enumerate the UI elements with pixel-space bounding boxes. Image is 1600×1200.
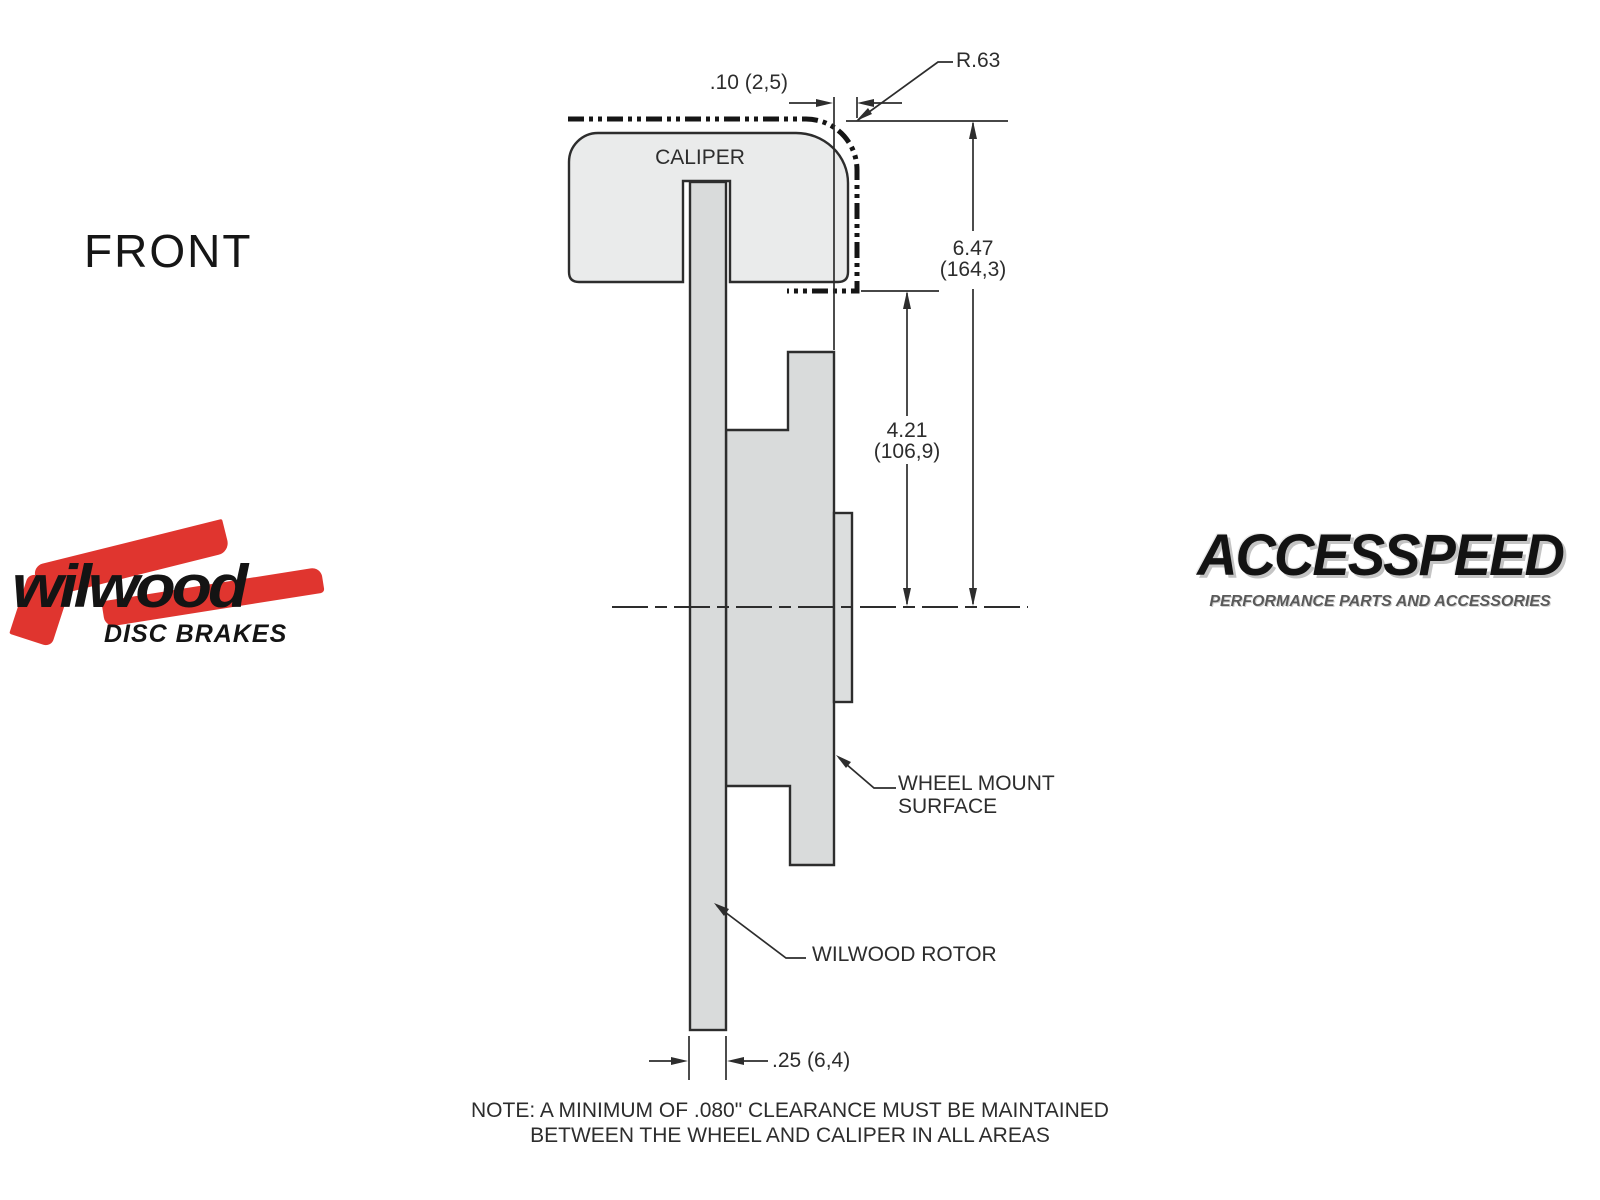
wheel-mount-leader-line xyxy=(836,755,896,788)
dim-rotor-thickness-label: .25 (6,4) xyxy=(772,1050,850,1072)
wheel-mount-surface-callout: WHEEL MOUNT SURFACE xyxy=(898,772,1055,818)
arrowhead-left xyxy=(857,99,874,107)
arrowhead-up xyxy=(969,121,977,139)
accesspeed-logo: ACCESSPEED PERFORMANCE PARTS AND ACCESSO… xyxy=(1192,522,1568,640)
arrowhead-right xyxy=(671,1057,688,1065)
dim-overall-height xyxy=(969,121,977,606)
wheel-mount-surface-line2: SURFACE xyxy=(898,795,1055,818)
dim-mount-height-label: 4.21 (106,9) xyxy=(854,420,960,462)
dim-overall-height-label: 6.47 (164,3) xyxy=(920,238,1026,280)
leader-line xyxy=(717,906,806,958)
leader-line xyxy=(858,62,953,120)
wilwood-disc-brakes-text: DISC BRAKES xyxy=(104,620,287,649)
arrowhead-down xyxy=(903,588,911,606)
dim-mount-height-mm: (106,9) xyxy=(854,441,960,462)
wilwood-rotor-callout: WILWOOD ROTOR xyxy=(812,944,997,966)
wheel-mount-surface-line1: WHEEL MOUNT xyxy=(898,772,1055,795)
dim-overall-height-mm: (164,3) xyxy=(920,259,1026,280)
caliper-label: CALIPER xyxy=(560,147,840,169)
accesspeed-tagline: PERFORMANCE PARTS AND ACCESSORIES xyxy=(1192,593,1568,611)
wilwood-logo: wilwood DISC BRAKES xyxy=(12,538,324,656)
radius-leader-line xyxy=(856,62,953,121)
dim-radius-label: R.63 xyxy=(956,50,1000,72)
dim-clearance-label: .10 (2,5) xyxy=(650,72,788,94)
clearance-note-line1: NOTE: A MINIMUM OF .080" CLEARANCE MUST … xyxy=(390,1098,1190,1123)
view-orientation-label: FRONT xyxy=(84,240,252,262)
accesspeed-wordmark: ACCESSPEED xyxy=(1192,520,1568,588)
clearance-note-line2: BETWEEN THE WHEEL AND CALIPER IN ALL ARE… xyxy=(390,1123,1190,1148)
dim-rotor-thickness xyxy=(649,1057,768,1065)
arrowhead-up xyxy=(903,291,911,309)
arrowhead-down-left xyxy=(856,108,872,121)
arrowhead-right xyxy=(816,99,833,107)
clearance-note: NOTE: A MINIMUM OF .080" CLEARANCE MUST … xyxy=(390,1098,1190,1148)
hat-shape xyxy=(726,352,834,865)
arrowhead-left xyxy=(727,1057,744,1065)
dim-overall-height-inches: 6.47 xyxy=(920,238,1026,259)
dim-mount-height-inches: 4.21 xyxy=(854,420,960,441)
arrowhead-down xyxy=(969,588,977,606)
rotor-leader-line xyxy=(714,903,806,958)
brake-clearance-diagram-page: FRONT CALIPER .10 (2,5) R.63 6.47 (164,3… xyxy=(0,0,1600,1200)
wilwood-wordmark: wilwood xyxy=(12,551,244,621)
